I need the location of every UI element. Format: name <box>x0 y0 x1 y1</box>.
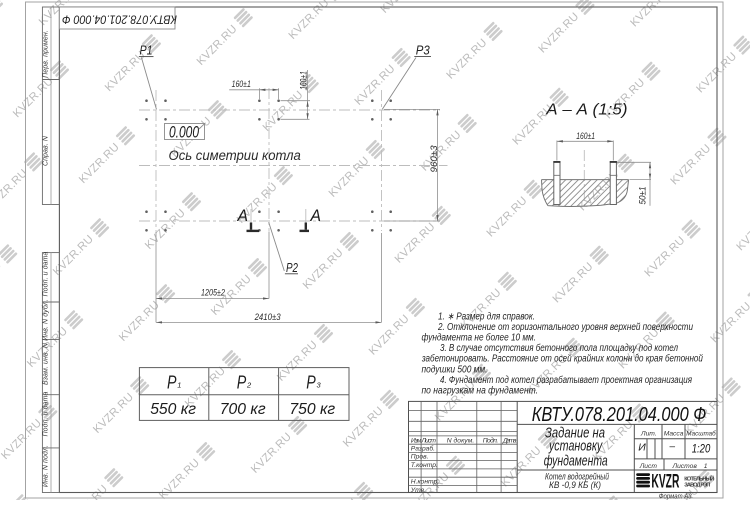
svg-text:по нагрузкам на фундамент.: по нагрузкам на фундамент. <box>422 385 539 397</box>
svg-text:KVZR: KVZR <box>651 470 679 492</box>
svg-text:550 кг: 550 кг <box>150 401 196 418</box>
svg-text:подушки 500 мм.: подушки 500 мм. <box>422 364 488 375</box>
svg-text:Ось симетрии котла: Ось симетрии котла <box>169 148 302 163</box>
svg-text:И: И <box>638 442 646 454</box>
svg-text:Разраб.: Разраб. <box>411 444 435 452</box>
svg-text:1: 1 <box>177 381 181 390</box>
svg-text:Справ. N: Справ. N <box>43 135 50 166</box>
svg-text:Т.контр.: Т.контр. <box>411 462 438 469</box>
svg-text:2: 2 <box>246 381 252 390</box>
svg-text:Утв.: Утв. <box>410 487 426 494</box>
svg-text:КВ -0,9 КБ (К): КВ -0,9 КБ (К) <box>549 480 601 490</box>
svg-text:160±1: 160±1 <box>576 131 595 141</box>
svg-text:КОТЕЛЬНЫЙ: КОТЕЛЬНЫЙ <box>684 474 714 482</box>
svg-text:P: P <box>167 372 177 392</box>
svg-text:забетонировать. Расстояние от: забетонировать. Расстояние от осей крайн… <box>421 353 703 365</box>
svg-text:50±1: 50±1 <box>637 187 647 205</box>
svg-text:750 кг: 750 кг <box>289 401 335 418</box>
svg-text:P: P <box>306 372 316 392</box>
svg-text:P3: P3 <box>416 44 430 58</box>
svg-text:160±1: 160±1 <box>298 71 308 90</box>
svg-text:4. Фундамент под котел разраба: 4. Фундамент под котел разрабатывает про… <box>440 374 693 386</box>
svg-text:Листов: Листов <box>672 463 698 470</box>
svg-text:Подп.: Подп. <box>483 437 499 445</box>
svg-text:0.000: 0.000 <box>169 123 200 141</box>
svg-text:ЗАВОД РЭП: ЗАВОД РЭП <box>684 482 710 488</box>
svg-text:160±1: 160±1 <box>232 79 251 89</box>
svg-text:–: – <box>670 442 676 453</box>
svg-text:Изм.Лист: Изм.Лист <box>411 438 436 445</box>
svg-text:Перв. примен.: Перв. примен. <box>43 30 50 78</box>
svg-text:1: 1 <box>704 463 708 470</box>
svg-text:А: А <box>237 206 248 225</box>
svg-text:КВТУ.078.201.04.000 Ф: КВТУ.078.201.04.000 Ф <box>532 404 707 426</box>
svg-text:Взам. инв. N: Взам. инв. N <box>43 342 50 385</box>
svg-text:P2: P2 <box>286 261 298 275</box>
svg-text:P1: P1 <box>140 44 153 58</box>
svg-text:Н.контр.: Н.контр. <box>411 479 439 486</box>
svg-text:3. В случае отсутствия бетонно: 3. В случае отсутствия бетонного пола пл… <box>440 342 678 354</box>
svg-text:фундамента не более 10 мм.: фундамента не более 10 мм. <box>422 332 537 344</box>
svg-text:960±3: 960±3 <box>429 146 439 173</box>
svg-text:Лит.: Лит. <box>640 431 657 438</box>
svg-text:Масса: Масса <box>664 431 684 438</box>
svg-text:Пров.: Пров. <box>411 454 429 461</box>
svg-text:1205±2: 1205±2 <box>201 288 225 298</box>
svg-text:700 кг: 700 кг <box>220 401 266 418</box>
svg-text:2. Отклонение от горизонтально: 2. Отклонение от горизонтального уровня … <box>437 322 693 333</box>
svg-text:Инв. N дубл.: Инв. N дубл. <box>42 299 50 341</box>
svg-text:Подп. и дата: Подп. и дата <box>42 391 50 436</box>
svg-text:Лист: Лист <box>639 463 658 470</box>
svg-text:КВТУ.078.201.04.000 Ф: КВТУ.078.201.04.000 Ф <box>62 13 177 27</box>
svg-text:Дата: Дата <box>502 438 517 445</box>
svg-text:А: А <box>310 206 321 225</box>
svg-text:2410±3: 2410±3 <box>254 312 281 322</box>
svg-text:N докум.: N докум. <box>447 437 475 445</box>
svg-text:Формат А3: Формат А3 <box>659 491 692 500</box>
svg-text:фундамента: фундамента <box>544 454 608 470</box>
svg-text:P: P <box>237 372 247 392</box>
svg-text:Инв. N подл.: Инв. N подл. <box>42 445 50 487</box>
svg-text:А – А (1:5): А – А (1:5) <box>545 102 627 119</box>
svg-text:Подп. и дата: Подп. и дата <box>42 251 50 296</box>
svg-text:1:20: 1:20 <box>692 444 711 456</box>
svg-text:1. ∗ Размер для справок.: 1. ∗ Размер для справок. <box>438 311 535 322</box>
svg-text:Масштаб: Масштаб <box>686 430 716 438</box>
svg-text:установку: установку <box>548 439 603 455</box>
